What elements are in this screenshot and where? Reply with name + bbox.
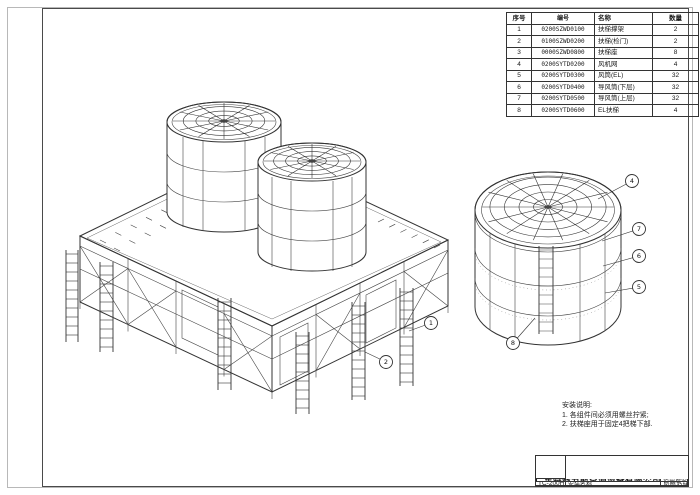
title-block-spare-cell [536,456,566,479]
part-cell: 4 [653,105,699,117]
parts-table: 序号 编号 名称 数量 10200SZWD0100扶梯撑架220100SZWD0… [506,12,699,117]
part-cell: 2 [653,36,699,48]
part-cell: 风筒(EL) [595,70,653,82]
balloon-2: 2 [365,352,393,369]
svg-text:5: 5 [637,283,641,291]
part-cell: 2 [507,36,532,48]
col-header-qty: 数量 [653,13,699,25]
col-header-name: 名称 [595,13,653,25]
notes-line: 1. 各组件间必须用螺丝拧紧; [562,411,653,421]
install-notes: 安装说明: 1. 各组件间必须用螺丝拧紧; 2. 扶梯座用于固定4把梯下部. [562,401,653,430]
x-brace [404,250,448,328]
col-header-code: 编号 [532,13,595,25]
notes-title: 安装说明: [562,401,653,411]
drawing-sheet: 1247658 序号 编号 名称 数量 10200SZWD0100扶梯撑架220… [0,0,700,495]
table-row: 80200SYTD0600EL扶梯4 [507,105,699,117]
part-cell: 0200SYTD0300 [532,70,595,82]
part-cell: 0200SYTD0500 [532,93,595,105]
part-cell: 6 [507,82,532,94]
part-cell: 导风筒(下层) [595,82,653,94]
part-cell: 0100SZWD0200 [532,36,595,48]
part-cell: 5 [507,70,532,82]
svg-text:1: 1 [429,319,433,327]
table-row: 70200SYTD0500导风筒(上层)32 [507,93,699,105]
x-brace [316,293,360,371]
part-cell: 导风筒(上层) [595,93,653,105]
parts-table-body: 10200SZWD0100扶梯撑架220100SZWD0200扶梯(检门)230… [507,24,699,116]
part-cell: 8 [507,105,532,117]
svg-text:6: 6 [637,252,641,260]
svg-text:7: 7 [637,225,641,233]
parts-table-header-row: 序号 编号 名称 数量 [507,13,699,25]
svg-text:8: 8 [511,339,515,347]
table-row: 60200SYTD0400导风筒(下层)32 [507,82,699,94]
part-cell: 0200SZWD0100 [532,24,595,36]
table-row: 20100SZWD0200扶梯(检门)2 [507,36,699,48]
part-cell: 2 [653,24,699,36]
part-cell: 风机网 [595,59,653,71]
part-cell: 0000SZWD0800 [532,47,595,59]
part-cell: 扶梯座 [595,47,653,59]
detail-view [475,172,621,345]
table-row: 30000SZWD0800扶梯座8 [507,47,699,59]
part-cell: 0200SYTD0200 [532,59,595,71]
part-cell: 32 [653,70,699,82]
col-header-no: 序号 [507,13,532,25]
table-row: 10200SZWD0100扶梯撑架2 [507,24,699,36]
part-cell: 4 [507,59,532,71]
fan-cowl-b [258,143,366,271]
part-cell: 扶梯撑架 [595,24,653,36]
install-name-value: 风筒及扶梯安装 [661,482,688,486]
model-value: TC-200H [536,482,566,486]
svg-text:4: 4 [630,177,634,185]
table-row: 40200SYTD0200风机网4 [507,59,699,71]
access-door [182,290,218,355]
part-cell: 3 [507,47,532,59]
table-row: 50200SYTD0300风筒(EL)32 [507,70,699,82]
install-name-label: 安装名称 [566,482,661,486]
svg-text:2: 2 [384,358,388,366]
part-cell: 8 [653,47,699,59]
notes-line: 2. 扶梯座用于固定4把梯下部. [562,420,653,430]
part-cell: 32 [653,82,699,94]
part-cell: EL扶梯 [595,105,653,117]
part-cell: 0200SYTD0400 [532,82,595,94]
part-cell: 1 [507,24,532,36]
title-block: 广东特菱节能空调设备有限公司 适用塔型 TC-200H 安装名称 风筒及扶梯安装 [535,455,689,487]
part-cell: 4 [653,59,699,71]
part-cell: 0200SYTD0600 [532,105,595,117]
part-cell: 扶梯(检门) [595,36,653,48]
main-tower-view [66,102,448,414]
part-cell: 32 [653,93,699,105]
part-cell: 7 [507,93,532,105]
